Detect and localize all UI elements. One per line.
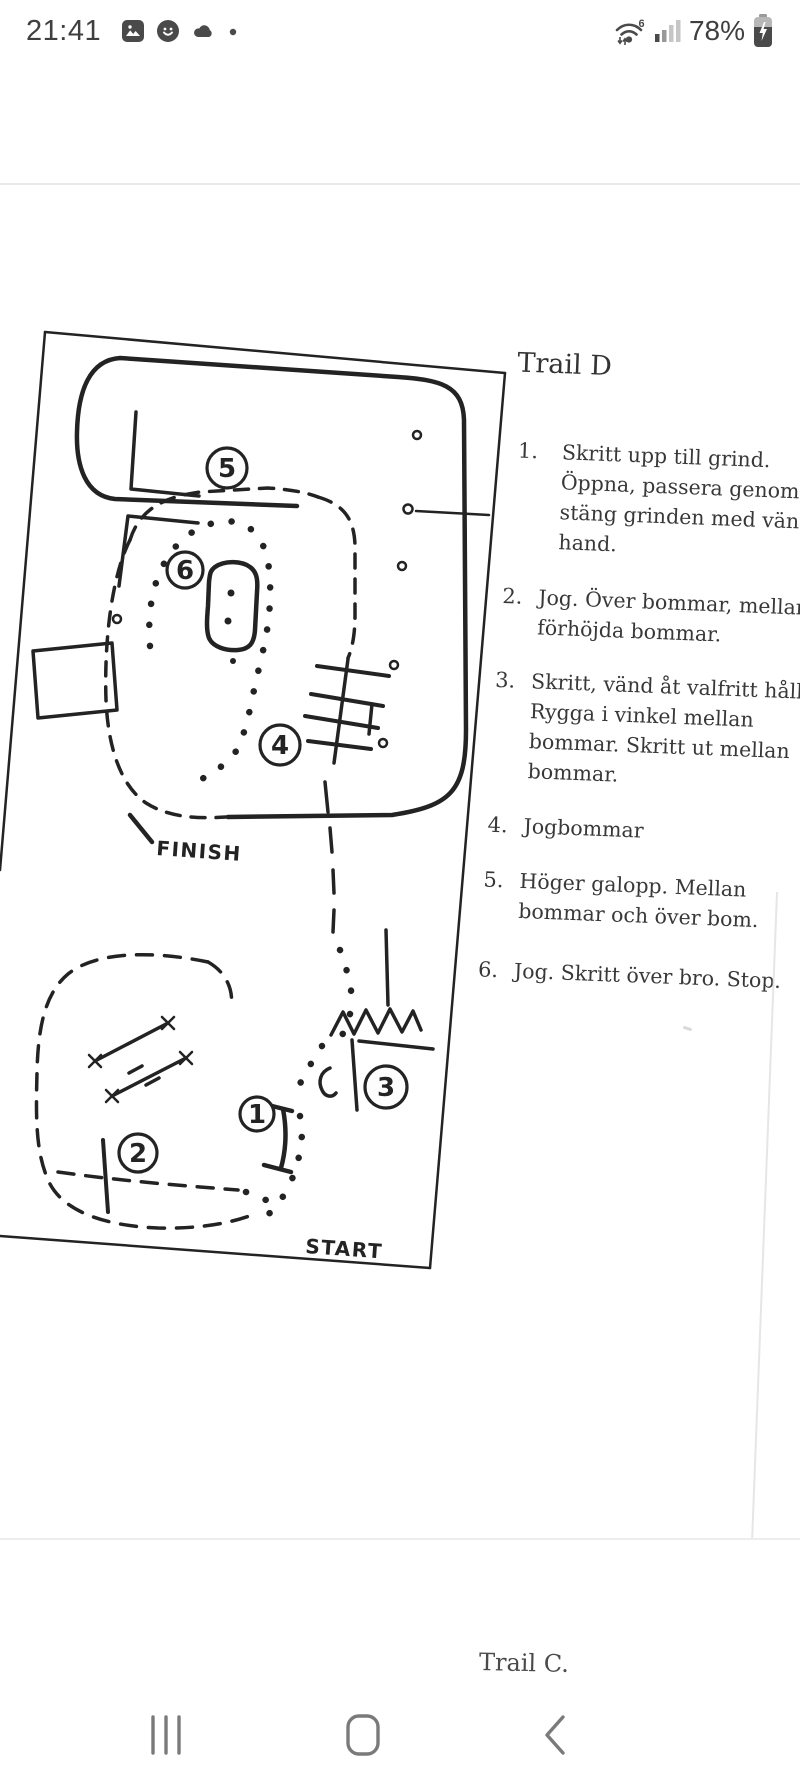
- gate-rail: [416, 511, 489, 515]
- instruction-item-5: 5. Höger galopp. Mellan bommar och över …: [482, 865, 760, 936]
- photo-divider: [0, 1538, 800, 1540]
- course-dash: [330, 828, 332, 852]
- instruction-item-2: 2. Jog. Över bommar, mellan förhöjda bom…: [501, 581, 800, 653]
- svg-text:6: 6: [176, 556, 194, 586]
- fence-post: [390, 661, 398, 669]
- notification-icons: [121, 19, 238, 43]
- course-path-dashed: [130, 488, 318, 540]
- obstacle-marker-1: 1: [240, 1097, 274, 1131]
- clock: 21:41: [26, 15, 101, 48]
- path-dot: [230, 658, 236, 664]
- obstacle-marker-3: 3: [365, 1066, 407, 1108]
- home-icon: [344, 1713, 382, 1757]
- recents-icon: [146, 1713, 186, 1757]
- header-divider: [0, 183, 800, 185]
- page-title: Trail D: [517, 347, 613, 382]
- battery-charging-icon: [752, 14, 774, 48]
- recents-button[interactable]: [106, 1690, 226, 1779]
- instruction-item-3: 3. Skritt, vänd åt valfritt håll. Rygga …: [491, 665, 800, 797]
- bridge: [207, 562, 257, 650]
- obstacle-marker-4: 4: [260, 725, 300, 765]
- course-path-dashed: [36, 955, 252, 1228]
- course-path-dashed: [208, 962, 232, 1008]
- course-dash: [325, 782, 328, 812]
- fence-post: [404, 505, 413, 514]
- obstacle-marker-5: 5: [207, 448, 247, 488]
- avatar-app-icon: [156, 19, 180, 43]
- home-button[interactable]: [303, 1690, 423, 1779]
- item-number: 1.: [501, 435, 562, 467]
- instruction-item-1: 1. Skritt upp till grind. Öppna, passera…: [498, 435, 800, 567]
- item-number: 5.: [483, 865, 520, 896]
- course-path-dotted: [149, 521, 270, 781]
- fence-post: [398, 562, 406, 570]
- fence-post: [379, 739, 387, 747]
- instruction-item-6: 6. Jog. Skritt över bro. Stop.: [478, 954, 782, 996]
- svg-text:4: 4: [271, 731, 289, 761]
- svg-text:3: 3: [377, 1073, 395, 1103]
- instruction-list: Trail D 1. Skritt upp till grind. Öppna,…: [479, 347, 800, 1059]
- course-path-dotted: [295, 1046, 322, 1097]
- svg-text:2: 2: [129, 1139, 147, 1169]
- finish-label: FINISH: [156, 836, 243, 866]
- course-hook: [320, 1068, 336, 1096]
- course-path-dotted: [340, 950, 352, 1000]
- jog-poles: [305, 659, 389, 763]
- signal-bars-icon: [654, 18, 682, 44]
- next-page-title: Trail C.: [479, 1648, 569, 1678]
- svg-text:1: 1: [248, 1100, 266, 1130]
- status-bar[interactable]: 21:41: [0, 0, 800, 62]
- instruction-text: Jogbommar: [523, 811, 644, 846]
- wifi-6-icon: 6: [613, 15, 647, 47]
- gallery-icon: [121, 19, 145, 43]
- course-dash: [333, 870, 334, 893]
- obstacle-marker-6: 6: [167, 552, 203, 588]
- battery-percentage: 78%: [689, 15, 745, 47]
- bridge-dot: [225, 618, 232, 625]
- course-dash: [333, 910, 334, 932]
- bridge-dot: [228, 590, 235, 597]
- phone-screen: 21:41: [0, 0, 800, 1779]
- course-path-dashed: [318, 497, 355, 658]
- cloud-icon: [191, 19, 217, 43]
- course-path-dashed: [58, 1172, 238, 1190]
- arena-border-left: [0, 332, 45, 870]
- back-icon: [537, 1713, 573, 1757]
- item-number: 4.: [487, 810, 524, 841]
- instruction-item-4: 4. Jogbommar: [487, 810, 644, 846]
- fence-post: [413, 431, 421, 439]
- item-number: 2.: [502, 581, 539, 612]
- navigation-bar: [0, 1690, 800, 1779]
- svg-text:5: 5: [218, 454, 236, 484]
- back-button[interactable]: [495, 1690, 615, 1779]
- course-path-dotted: [246, 1192, 266, 1200]
- finish-tick: [130, 815, 152, 842]
- more-notifications-dot: [228, 19, 238, 43]
- item-number: 6.: [478, 954, 515, 985]
- obstacle5-poles: [131, 412, 199, 496]
- fence-post: [113, 615, 121, 623]
- trail-map-drawing: 5 6 4 2 1 3 FINISH: [0, 285, 520, 1285]
- item-number: 3.: [495, 665, 532, 696]
- box-marker: [33, 643, 117, 718]
- wifi-standard-label: 6: [638, 18, 644, 30]
- obstacle-marker-2: 2: [119, 1134, 157, 1172]
- instruction-text: Jog. Skritt över bro. Stop.: [513, 956, 781, 996]
